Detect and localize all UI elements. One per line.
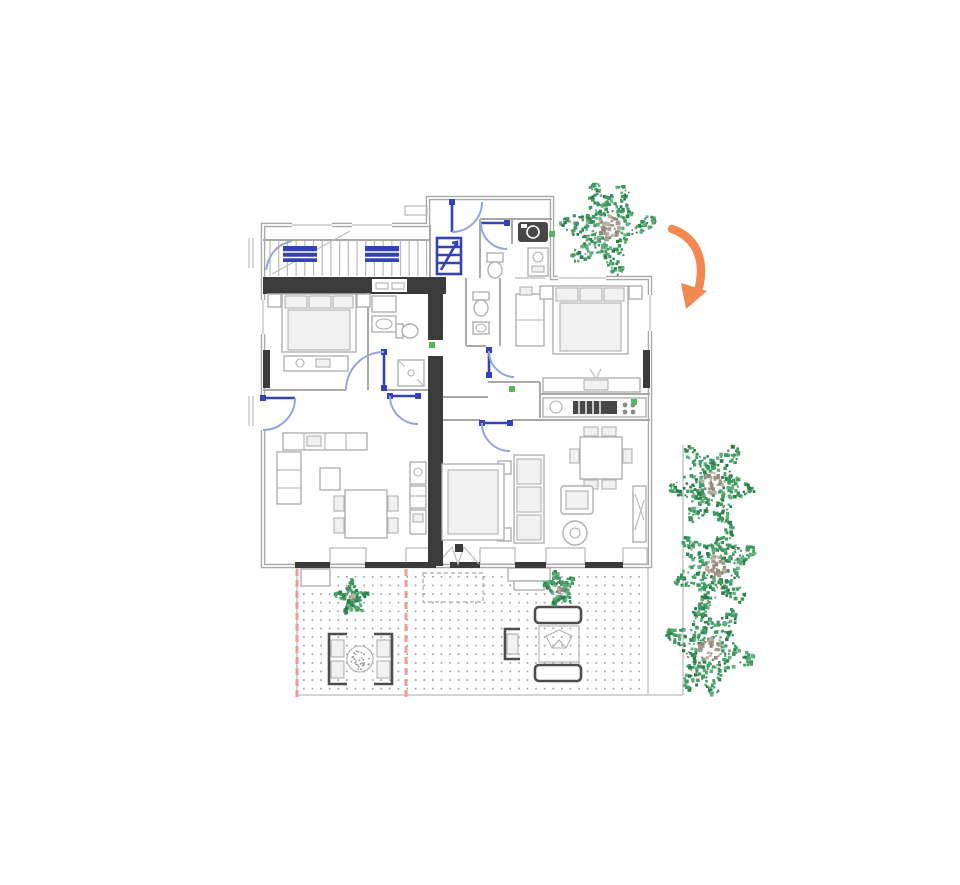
dining-table-left [334, 490, 398, 538]
outdoor-lounge-set [329, 634, 392, 684]
stair-direction-arrow [437, 238, 461, 274]
washing-machine-icon [518, 222, 548, 242]
armchair [561, 486, 593, 514]
plant [674, 525, 757, 611]
kitchen-island [320, 468, 340, 490]
sofa-bed [442, 455, 544, 543]
bathroom-left-door [387, 393, 421, 424]
side-table [563, 521, 587, 545]
kitchen-left [277, 433, 426, 538]
staircase [263, 231, 461, 276]
plant [669, 445, 755, 525]
living-door [479, 420, 513, 451]
boiler [528, 248, 548, 276]
porch-steps [301, 568, 550, 590]
nightstand [629, 286, 642, 299]
nightstand [357, 294, 370, 307]
dining-table-right [570, 427, 632, 489]
bed-left [282, 294, 356, 352]
bedroom-right-door [486, 347, 514, 378]
entry-door [449, 199, 482, 232]
vanity-right [543, 369, 640, 392]
toilet-left [396, 324, 418, 338]
outdoor-table-texture [350, 650, 370, 670]
hall-door [481, 220, 510, 249]
bathroom-left [372, 296, 424, 424]
appliance-column [410, 462, 426, 534]
shower [398, 360, 424, 386]
nightstand [268, 294, 281, 307]
dresser-left [284, 356, 348, 371]
direction-arrow [672, 229, 707, 309]
outdoor-dining-set [505, 607, 581, 681]
stair-marker-left [283, 246, 317, 262]
roof-vent [405, 206, 427, 215]
entrance-left [259, 395, 295, 430]
wc-toilet [487, 253, 503, 278]
french-door [437, 544, 479, 564]
plant [665, 606, 755, 697]
bathroom-right [473, 292, 489, 334]
plant [334, 578, 370, 615]
plant [559, 183, 657, 276]
kitchenette-right [543, 398, 646, 417]
nightstand [540, 286, 553, 299]
tv-bench [633, 486, 646, 542]
outdoor-dining-table [539, 626, 579, 662]
entry-hall [449, 199, 548, 278]
bedroom-left-door [346, 349, 387, 391]
bedroom-left [268, 294, 387, 391]
floor-plan-canvas [0, 0, 960, 885]
stair-marker-right [365, 246, 399, 262]
living-right [442, 420, 646, 545]
bedroom-right [486, 286, 642, 392]
bed-right [553, 286, 628, 354]
